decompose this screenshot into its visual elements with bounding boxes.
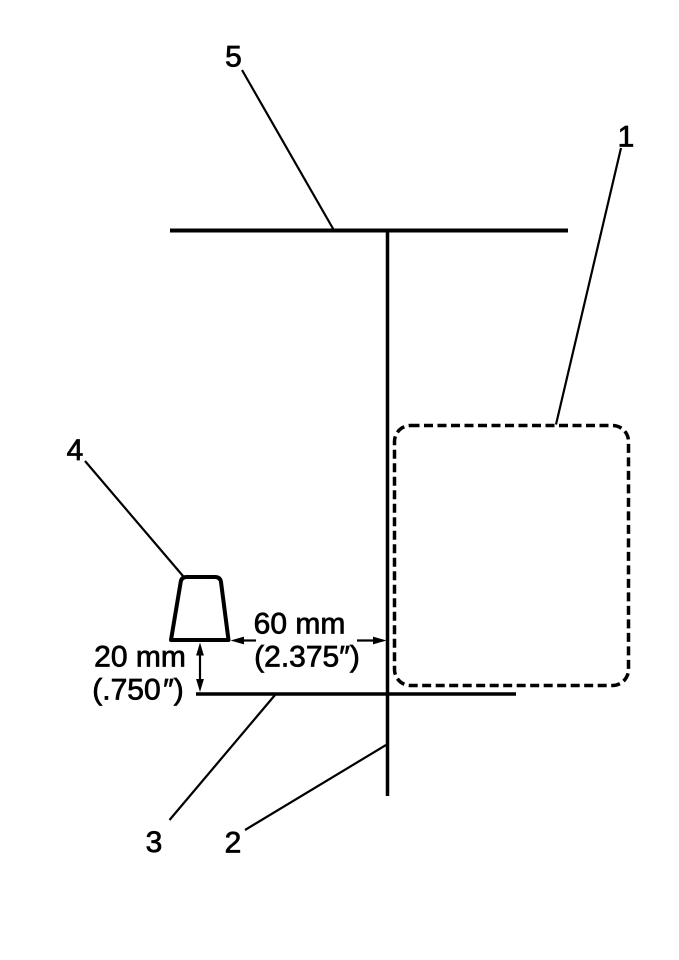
svg-text:4: 4	[67, 434, 84, 467]
svg-text:(2.375″): (2.375″)	[254, 641, 360, 674]
svg-text:3: 3	[146, 826, 163, 859]
svg-text:2: 2	[225, 827, 242, 860]
svg-text:(.750 ″): (.750 ″)	[92, 674, 184, 707]
svg-text:60 mm: 60 mm	[254, 608, 346, 641]
svg-text:1: 1	[618, 121, 635, 154]
svg-text:5: 5	[225, 41, 242, 74]
svg-text:20 mm: 20 mm	[94, 641, 186, 674]
